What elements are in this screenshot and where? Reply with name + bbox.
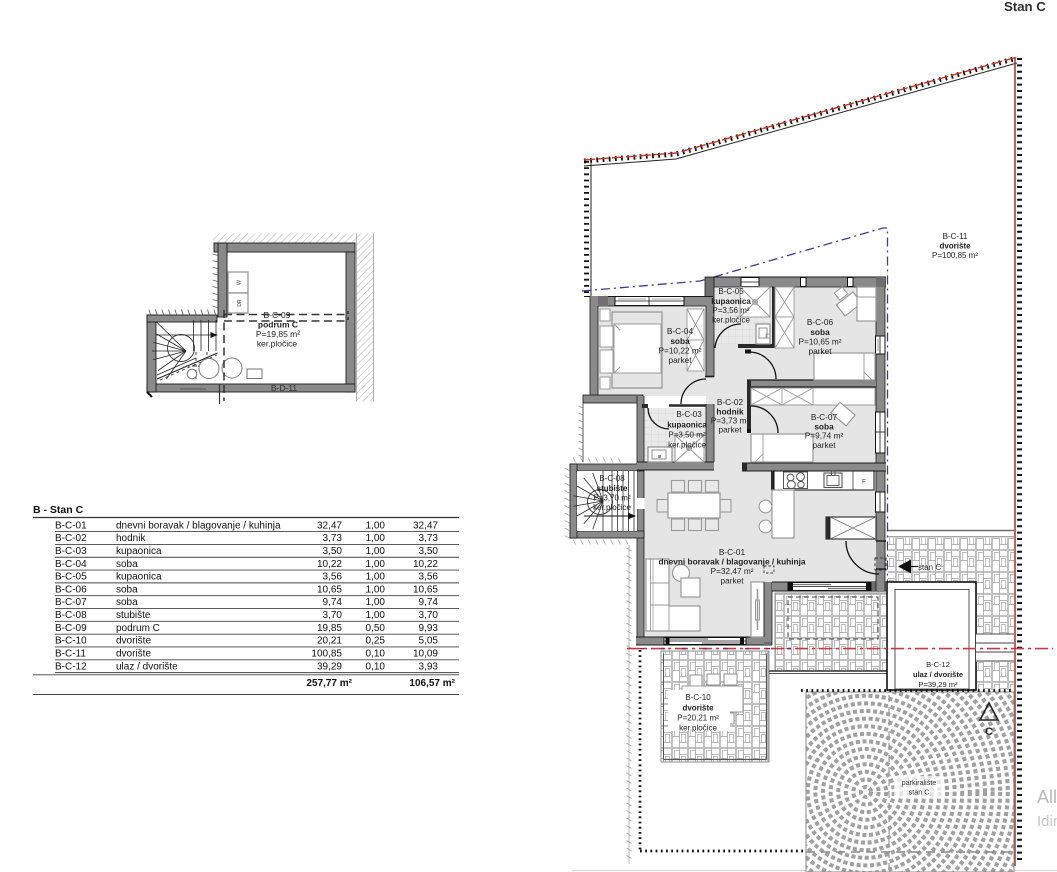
svg-text:parket: parket [668,355,692,365]
svg-text:0,25: 0,25 [366,636,386,647]
svg-text:soba: soba [810,327,830,337]
svg-text:B-C-06: B-C-06 [807,317,834,327]
svg-text:C: C [985,726,993,738]
svg-text:B-C-07: B-C-07 [55,597,87,608]
svg-text:10,22: 10,22 [317,559,342,570]
svg-text:ulaz / dvorište: ulaz / dvorište [116,661,178,672]
svg-text:dvorište: dvorište [116,649,151,660]
svg-text:stubište: stubište [597,484,628,493]
svg-text:ker.pločice: ker.pločice [257,339,297,349]
svg-text:P=3,56 m²: P=3,56 m² [712,306,749,315]
svg-text:ker.pločice: ker.pločice [593,503,631,512]
svg-text:parkiralište: parkiralište [902,778,937,787]
svg-text:3,93: 3,93 [419,661,439,672]
svg-text:P=3,50 m²: P=3,50 m² [668,431,705,440]
svg-text:9,74: 9,74 [419,597,439,608]
svg-text:B-C-09: B-C-09 [264,310,291,320]
svg-text:B-C-01: B-C-01 [55,520,87,531]
svg-text:B-C-01: B-C-01 [719,547,746,557]
svg-text:B-C-06: B-C-06 [55,584,87,595]
svg-text:F: F [862,479,866,486]
svg-text:P=100,85 m²: P=100,85 m² [932,251,978,260]
svg-text:1,00: 1,00 [366,533,386,544]
svg-text:P=19,85 m²: P=19,85 m² [256,329,300,339]
svg-text:5,05: 5,05 [419,636,439,647]
svg-text:B-C-03: B-C-03 [676,410,702,419]
svg-text:B-C-07: B-C-07 [811,412,838,422]
svg-text:P=3,70 m²: P=3,70 m² [593,494,630,503]
svg-text:dvorište: dvorište [939,242,971,251]
svg-text:32,47: 32,47 [413,520,438,531]
svg-text:1,00: 1,00 [366,584,386,595]
svg-text:B-C-05: B-C-05 [718,287,744,296]
svg-text:B-C-10: B-C-10 [685,693,711,702]
svg-text:stan C: stan C [918,563,941,572]
svg-text:Stan C: Stan C [1004,0,1046,14]
svg-text:stan C: stan C [909,788,930,797]
svg-text:ker.pločice: ker.pločice [679,724,717,733]
svg-text:DR: DR [237,299,243,307]
svg-text:P=20,21 m²: P=20,21 m² [677,714,719,723]
svg-text:B-C-04: B-C-04 [667,326,694,336]
svg-text:kupaonica: kupaonica [711,297,751,306]
svg-text:hodnik: hodnik [116,533,146,544]
svg-text:B-D-11: B-D-11 [271,383,298,393]
svg-text:B-C-02: B-C-02 [717,397,744,407]
svg-text:Alles: Alles [1037,787,1057,807]
svg-text:ker.pločice: ker.pločice [668,441,706,450]
svg-text:parket: parket [720,576,744,586]
svg-text:0,50: 0,50 [366,623,386,634]
svg-text:B-C-11: B-C-11 [55,649,86,660]
svg-text:39,29: 39,29 [317,661,342,672]
svg-text:parket: parket [808,346,832,356]
svg-text:3,56: 3,56 [323,572,343,583]
svg-text:10,65: 10,65 [413,584,438,595]
svg-text:ker.pločice: ker.pločice [712,316,750,325]
svg-text:3,70: 3,70 [323,610,343,621]
svg-text:dvorište: dvorište [682,704,714,713]
svg-text:106,57 m²: 106,57 m² [409,678,455,689]
svg-text:20,21: 20,21 [317,636,342,647]
svg-text:1,00: 1,00 [366,520,386,531]
svg-text:3,56: 3,56 [419,572,439,583]
svg-text:P=9,74 m²: P=9,74 m² [805,431,844,441]
svg-text:B-C-12: B-C-12 [55,661,87,672]
svg-text:B-C-09: B-C-09 [55,623,87,634]
svg-text:1,00: 1,00 [366,572,386,583]
svg-text:B-C-08: B-C-08 [599,474,625,483]
svg-text:B-C-10: B-C-10 [55,636,87,647]
svg-text:parket: parket [812,440,836,450]
svg-text:10,65: 10,65 [317,584,342,595]
svg-text:W: W [237,279,243,285]
svg-text:3,73: 3,73 [323,533,343,544]
svg-text:1,00: 1,00 [366,546,386,557]
svg-text:1,00: 1,00 [366,597,386,608]
svg-text:P=10,65 m²: P=10,65 m² [798,337,841,347]
svg-text:3,50: 3,50 [419,546,439,557]
svg-text:podrum C: podrum C [258,320,298,330]
svg-text:1,00: 1,00 [366,610,386,621]
svg-text:10,22: 10,22 [413,559,438,570]
svg-text:9,74: 9,74 [323,597,343,608]
svg-text:P=10,22 m²: P=10,22 m² [658,346,701,356]
svg-text:3,50: 3,50 [323,546,343,557]
svg-text:257,77 m²: 257,77 m² [306,678,352,689]
svg-text:B - Stan C: B - Stan C [33,504,84,516]
svg-text:100,85: 100,85 [311,649,342,660]
svg-text:1,00: 1,00 [366,559,386,570]
svg-text:Idine: Idine [1037,813,1057,830]
svg-text:B-C-11: B-C-11 [943,232,968,241]
svg-text:B-C-12: B-C-12 [926,660,950,669]
svg-text:B-C-02: B-C-02 [55,533,87,544]
svg-text:stubište: stubište [116,610,151,621]
svg-text:soba: soba [670,336,690,346]
svg-text:soba: soba [116,559,138,570]
svg-text:dvorište: dvorište [116,636,151,647]
svg-text:P=32,47 m²: P=32,47 m² [710,566,753,576]
svg-text:0,10: 0,10 [366,661,386,672]
svg-text:B-C-04: B-C-04 [55,559,87,570]
svg-text:dnevni boravak / blagovanje /: dnevni boravak / blagovanje / kuhinja [116,520,281,531]
svg-text:9,93: 9,93 [419,623,439,634]
svg-text:kupaonica: kupaonica [116,572,162,583]
svg-text:B-C-08: B-C-08 [55,610,87,621]
svg-text:B-C-05: B-C-05 [55,572,87,583]
svg-text:32,47: 32,47 [317,520,342,531]
svg-text:10,09: 10,09 [413,649,438,660]
svg-text:3,73: 3,73 [419,533,439,544]
svg-text:soba: soba [116,584,138,595]
svg-text:ulaz / dvorište: ulaz / dvorište [913,670,963,679]
svg-text:B-C-03: B-C-03 [55,546,87,557]
svg-text:dnevni boravak / blagovanje /: dnevni boravak / blagovanje / kuhinja [658,557,805,567]
svg-text:19,85: 19,85 [317,623,342,634]
svg-text:soba: soba [116,597,138,608]
svg-text:kupaonica: kupaonica [116,546,162,557]
svg-text:3,70: 3,70 [419,610,439,621]
svg-text:kupaonica: kupaonica [667,421,707,430]
svg-text:podrum C: podrum C [116,623,160,634]
svg-text:0,10: 0,10 [366,649,386,660]
svg-text:P=39,29 m²: P=39,29 m² [919,680,958,689]
svg-text:parket: parket [718,425,742,435]
